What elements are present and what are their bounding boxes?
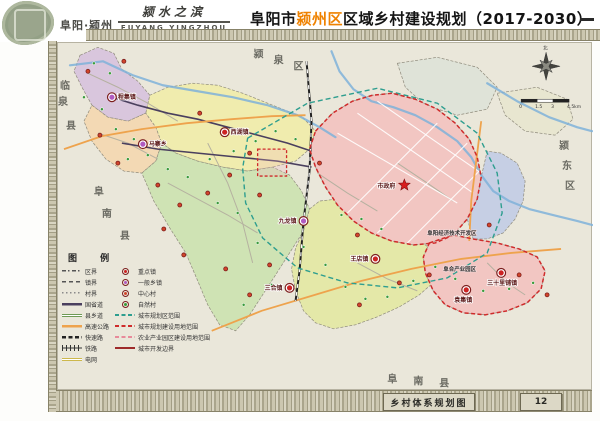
natural-village-dot — [508, 287, 511, 290]
scale-label: 1.5 — [535, 104, 542, 110]
legend-symbol-dot — [62, 290, 82, 296]
agri-park-boundary — [258, 149, 287, 176]
natural-village-dot — [324, 263, 327, 266]
center-village-dot — [258, 193, 262, 197]
natural-village-dot — [242, 303, 245, 306]
legend-item: 重点镇 — [115, 267, 210, 275]
legend-item: 电网 — [62, 355, 109, 363]
legend-symbol-yellowdouble — [62, 356, 82, 362]
page-number: 12 — [520, 393, 562, 411]
legend-item: 城市规划区范围 — [115, 311, 210, 319]
natural-village-dot — [344, 285, 347, 288]
scale-bar-segment — [553, 99, 569, 102]
page: 阜阳·颍州 颍水之滨 FUYANG YINGZHOU 阜阳市颍州区区域乡村建设规… — [0, 0, 600, 421]
legend-symbol-dash — [62, 279, 82, 285]
legend-label: 铁路 — [85, 344, 97, 353]
neighbor-label-funan-west: 县 — [120, 230, 131, 242]
map-sheet-title: 乡村体系规划图 — [383, 393, 475, 411]
title-suffix: 区域乡村建设规划（2017-2030） — [343, 10, 592, 28]
legend-label: 高速公路 — [85, 322, 109, 331]
neighbor-label-yingquan: 区 — [294, 60, 305, 72]
neighbor-label-funan-east: 县 — [439, 378, 450, 390]
legend-item: 区界 — [62, 267, 109, 275]
town-marker-general — [301, 218, 306, 223]
natural-village-dot — [386, 295, 389, 298]
town-label: 程集镇 — [117, 93, 136, 101]
legend-item: 自然村 — [115, 300, 210, 308]
town-label: 三合镇 — [265, 284, 283, 292]
natural-village-dot — [82, 96, 85, 99]
natural-village-dot — [236, 212, 239, 215]
center-village-dot — [206, 191, 210, 195]
legend-item: 城市规划建设用地范围 — [115, 322, 210, 330]
legend-symbol-orange — [62, 323, 82, 329]
center-village-dot — [248, 293, 252, 297]
neighbor-label-funan-west: 南 — [102, 207, 113, 220]
scale-bar-segment — [537, 99, 553, 102]
legend-label: 重点镇 — [138, 267, 156, 276]
center-village-dot — [162, 227, 166, 231]
natural-village-dot — [216, 202, 219, 205]
town-marker-general — [109, 95, 114, 100]
legend-label: 城市规划区范围 — [138, 311, 180, 320]
city-government-label: 市政府 — [377, 182, 395, 190]
legend-symbol-double — [62, 312, 82, 318]
town-label: 袁集镇 — [453, 296, 472, 304]
town-marker-key — [499, 270, 504, 275]
scale-label: 0 — [519, 104, 522, 110]
natural-village-dot — [380, 227, 383, 230]
legend-item: 镇界 — [62, 278, 109, 286]
natural-village-dot — [100, 108, 103, 111]
center-village-dot — [224, 267, 228, 271]
center-village-dot — [198, 111, 202, 115]
natural-village-dot — [126, 158, 129, 161]
natural-village-dot — [274, 130, 277, 133]
legend-item: 县乡道 — [62, 311, 109, 319]
center-village-dot — [116, 161, 120, 165]
legend-label: 中心村 — [138, 289, 156, 298]
legend-label: 县乡道 — [85, 311, 103, 320]
legend-label: 区界 — [85, 267, 97, 276]
neighbor-label-yingdong: 颍 — [558, 139, 570, 152]
natural-village-dot — [208, 158, 211, 161]
legend-left-column: 区界镇界村界国省道县乡道高速公路快速路铁路电网 — [62, 267, 109, 363]
scale-bar-segment — [521, 99, 537, 102]
center-village-dot — [156, 183, 160, 187]
center-village-dot — [487, 223, 491, 227]
center-village-dot — [98, 133, 102, 137]
legend-symbol-darkred — [115, 345, 135, 351]
legend-right-column: 重点镇一般乡镇中心村自然村城市规划区范围城市规划建设用地范围农业产业园区建设用地… — [115, 267, 210, 363]
neighbor-label-yingdong: 区 — [565, 180, 576, 192]
natural-village-dot — [186, 176, 189, 179]
legend-label: 国省道 — [85, 300, 103, 309]
natural-village-dot — [166, 168, 169, 171]
legend-label: 一般乡镇 — [138, 278, 162, 287]
center-village-dot — [355, 233, 359, 237]
town-label: 王店镇 — [350, 255, 368, 263]
scale-label: 4.5km — [567, 104, 581, 110]
neighbor-label-linquan: 泉 — [58, 95, 69, 108]
center-village-dot — [248, 151, 252, 155]
natural-village-dot — [412, 279, 415, 282]
zone-label: 阜合产业园区 — [443, 265, 476, 273]
center-village-dot — [318, 161, 322, 165]
legend-label: 电网 — [85, 355, 97, 364]
braid-left — [48, 41, 57, 412]
center-village-dot — [228, 173, 232, 177]
center-village-dot — [517, 273, 521, 277]
town-marker-key — [464, 287, 469, 292]
slogan-block: 颍水之滨 FUYANG YINGZHOU — [118, 3, 230, 32]
center-village-dot — [268, 263, 272, 267]
legend-symbol-circle — [122, 268, 129, 275]
map-canvas: 程集镇马寨乡西湖镇九龙镇三合镇王店镇袁集镇三十里铺镇市政府阜阳经济技术开发区阜合… — [57, 42, 592, 390]
header-right-mark — [580, 18, 594, 21]
town-marker-key — [222, 130, 227, 135]
town-label: 九龙镇 — [278, 217, 297, 225]
neighbor-label-yingdong: 东 — [562, 159, 573, 172]
legend-item: 国省道 — [62, 300, 109, 308]
natural-village-dot — [108, 72, 111, 75]
legend-label: 自然村 — [138, 300, 156, 309]
natural-village-dot — [254, 140, 257, 143]
town-marker-general — [140, 142, 145, 147]
natural-village-dot — [294, 138, 297, 141]
legend-label: 城市开发边界 — [138, 344, 174, 353]
center-village-dot — [545, 293, 549, 297]
neighbor-label-funan-east: 阜 — [387, 373, 398, 386]
town-marker-key — [373, 256, 378, 261]
legend-symbol-rail — [62, 345, 82, 351]
natural-village-dot — [364, 297, 367, 300]
neighbor-label-yingquan: 颍 — [253, 47, 265, 60]
center-village-dot — [357, 303, 361, 307]
natural-village-dot — [454, 277, 457, 280]
map-legend: 图 例 区界镇界村界国省道县乡道高速公路快速路铁路电网 重点镇一般乡镇中心村自然… — [62, 251, 210, 389]
compass-north-label: 北 — [543, 44, 548, 51]
town-label: 西湖镇 — [231, 128, 249, 136]
braid-bottom — [56, 390, 592, 412]
legend-item: 村界 — [62, 289, 109, 297]
legend-title: 图 例 — [68, 251, 210, 264]
scale-label: 3 — [551, 104, 554, 110]
legend-symbol-dashteal — [115, 312, 135, 318]
legend-item: 农业产业园区建设用地范围 — [115, 333, 210, 341]
legend-item: 快速路 — [62, 333, 109, 341]
legend-symbol-dashpink — [115, 334, 135, 340]
legend-label: 城市规划建设用地范围 — [138, 322, 198, 331]
natural-village-dot — [434, 265, 437, 268]
natural-village-dot — [256, 241, 259, 244]
legend-label: 农业产业园区建设用地范围 — [138, 333, 210, 342]
region-fuhe-park — [423, 235, 545, 315]
legend-symbol-circle — [122, 290, 129, 297]
legend-label: 快速路 — [85, 333, 103, 342]
legend-item: 铁路 — [62, 344, 109, 352]
seal-logo — [2, 1, 54, 45]
legend-item: 中心村 — [115, 289, 210, 297]
neighbor-label-funan-east: 南 — [413, 375, 424, 388]
center-village-dot — [178, 203, 182, 207]
braid-top — [86, 29, 600, 41]
neighbor-label-funan-west: 阜 — [94, 185, 105, 198]
natural-village-dot — [360, 217, 363, 220]
legend-symbol-dashdot — [62, 268, 82, 274]
legend-item: 一般乡镇 — [115, 278, 210, 286]
legend-item: 高速公路 — [62, 322, 109, 330]
legend-symbol-circle — [122, 279, 129, 286]
center-village-dot — [86, 69, 90, 73]
slogan-divider — [118, 21, 230, 23]
title-prefix: 阜阳市 — [250, 10, 297, 28]
natural-village-dot — [132, 138, 135, 141]
center-village-dot — [427, 273, 431, 277]
town-label: 三十里铺镇 — [487, 279, 517, 287]
center-village-dot — [397, 281, 401, 285]
legend-label: 镇界 — [85, 278, 97, 287]
legend-symbol-blackdash — [62, 334, 82, 340]
legend-label: 村界 — [85, 289, 97, 298]
natural-village-dot — [114, 128, 117, 131]
title-highlight: 颍州区 — [297, 10, 344, 28]
slogan-text: 颍水之滨 — [118, 3, 230, 20]
natural-village-dot — [532, 281, 535, 284]
legend-symbol-solid — [62, 301, 82, 307]
zone-label: 阜阳经济技术开发区 — [427, 229, 477, 237]
legend-item: 城市开发边界 — [115, 344, 210, 352]
natural-village-dot — [340, 214, 343, 217]
natural-village-dot — [482, 289, 485, 292]
town-marker-key — [287, 285, 292, 290]
legend-symbol-dashred — [115, 323, 135, 329]
legend-symbol-circle — [122, 301, 129, 308]
page-title: 阜阳市颍州区区域乡村建设规划（2017-2030） — [250, 8, 592, 29]
natural-village-dot — [232, 150, 235, 153]
center-village-dot — [122, 59, 126, 63]
natural-village-dot — [92, 62, 95, 65]
neighbor-label-linquan: 县 — [66, 120, 77, 132]
neighbor-label-yingquan: 泉 — [273, 53, 285, 66]
town-label: 马寨乡 — [149, 140, 167, 148]
natural-village-dot — [302, 245, 305, 248]
natural-village-dot — [146, 154, 149, 157]
neighbor-label-linquan: 临 — [60, 79, 71, 92]
